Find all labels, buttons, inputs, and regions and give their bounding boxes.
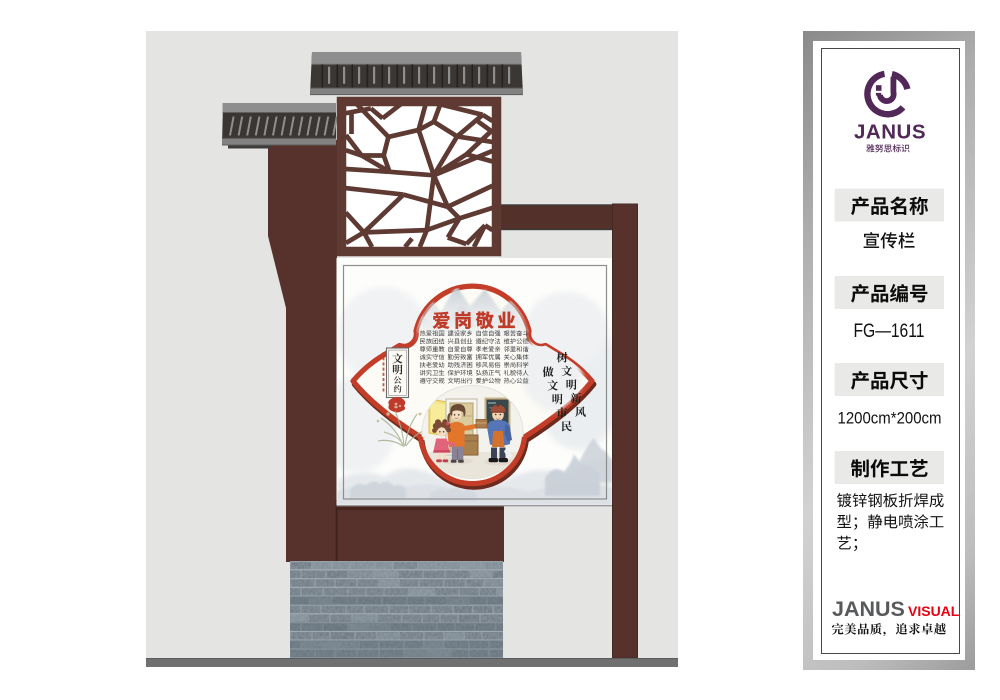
svg-text:JANUS: JANUS (832, 597, 905, 621)
svg-text:JANUS: JANUS (854, 121, 926, 144)
svg-text:1200cm*200cm: 1200cm*200cm (838, 409, 942, 428)
svg-text:FG—1611: FG—1611 (854, 320, 925, 342)
svg-text:VISUAL: VISUAL (908, 603, 960, 619)
